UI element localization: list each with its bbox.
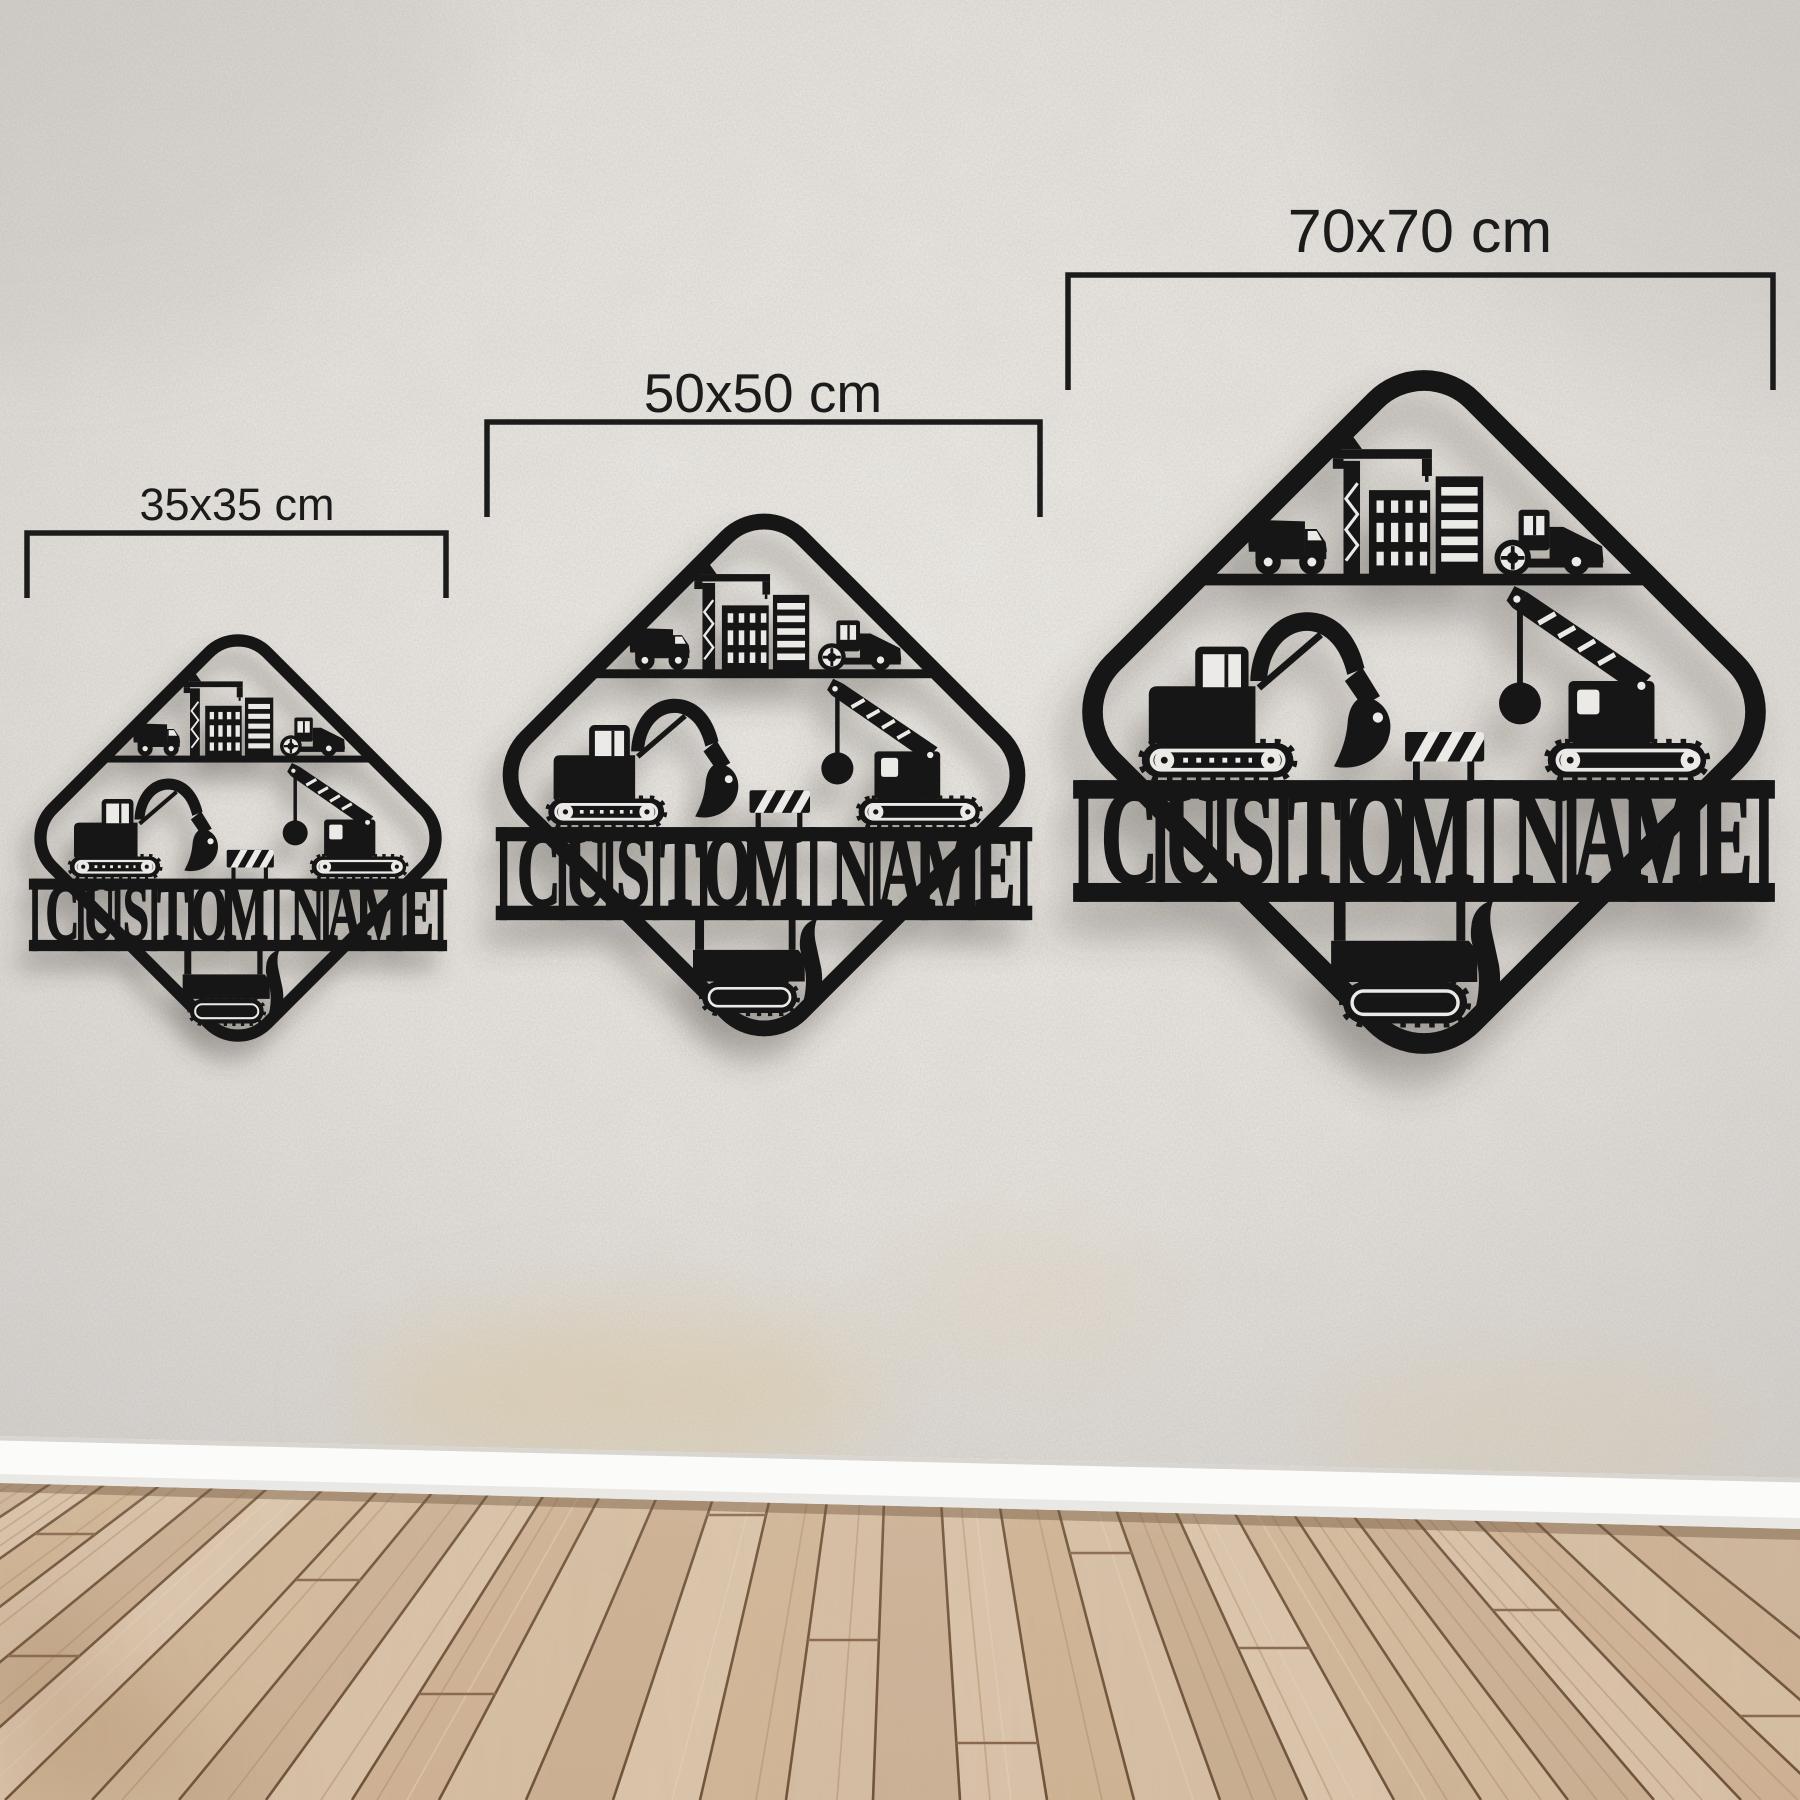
- svg-text:50x50 cm: 50x50 cm: [644, 362, 882, 424]
- svg-text:70x70 cm: 70x70 cm: [1288, 197, 1552, 265]
- svg-text:35x35 cm: 35x35 cm: [139, 479, 334, 530]
